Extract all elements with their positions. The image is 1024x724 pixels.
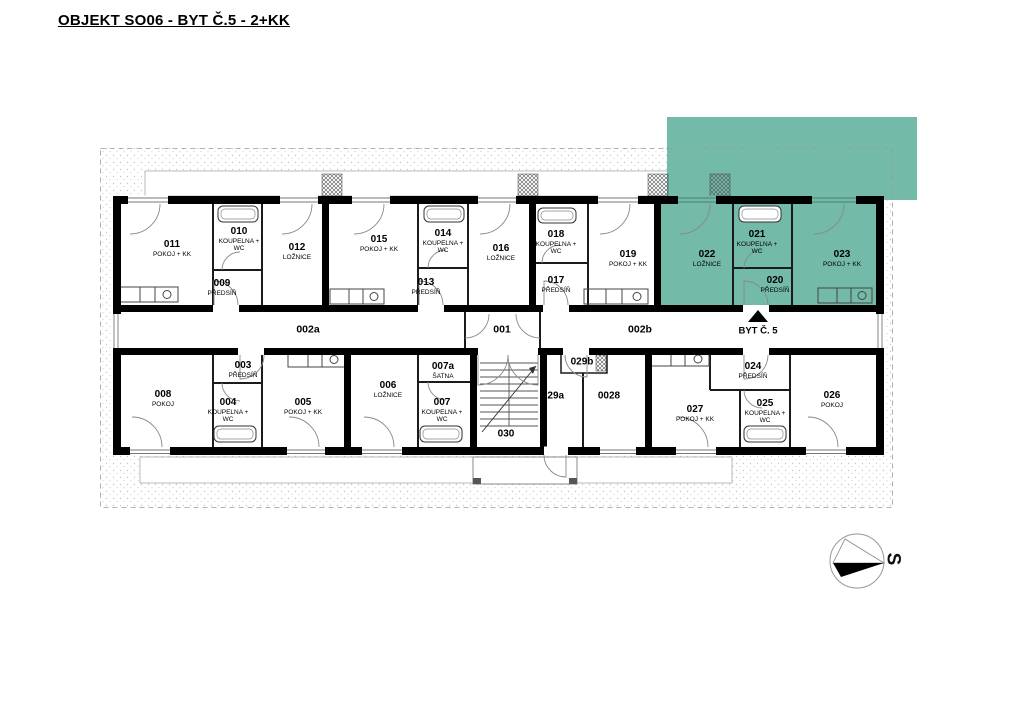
room-label-020: 020PŘEDSÍŇ — [761, 276, 790, 294]
room-label-005: 005POKOJ + KK — [284, 398, 322, 416]
room-label-013: 013PŘEDSÍŇ — [412, 278, 441, 296]
room-label-0028: 0028 — [598, 392, 620, 403]
room-label-021: 021KOUPELNA + WC — [733, 230, 781, 256]
room-label-022: 022LOŽNICE — [693, 250, 721, 268]
floorplan-drawing — [0, 0, 1024, 724]
apartment-pointer-label: BYT Č. 5 — [738, 326, 777, 337]
room-label-003: 003PŘEDSÍŇ — [229, 361, 258, 379]
compass-rose — [830, 534, 884, 588]
room-label-006: 006LOŽNICE — [374, 381, 402, 399]
room-label-030: 030 — [498, 430, 515, 441]
corridor-label-002b: 002b — [628, 324, 652, 335]
room-label-014: 014KOUPELNA + WC — [419, 229, 467, 255]
room-label-018: 018KOUPELNA + WC — [532, 230, 580, 256]
room-label-009: 009PŘEDSÍŇ — [208, 279, 237, 297]
room-label-019: 019POKOJ + KK — [609, 250, 647, 268]
room-label-024: 024PŘEDSÍŇ — [739, 362, 768, 380]
apartment-highlight — [667, 117, 917, 200]
room-label-023: 023POKOJ + KK — [823, 250, 861, 268]
room-label-027: 027POKOJ + KK — [676, 405, 714, 423]
room-label-008: 008POKOJ — [152, 390, 174, 408]
room-label-012: 012LOŽNICE — [283, 243, 311, 261]
room-label-010: 010KOUPELNA + WC — [215, 227, 263, 253]
room-label-011: 011POKOJ + KK — [153, 240, 191, 258]
corridor-label-001: 001 — [493, 324, 511, 335]
room-label-007: 007KOUPELNA + WC — [418, 398, 466, 424]
compass-north-label: S — [881, 553, 903, 566]
floorplan-page: OBJEKT SO06 - BYT Č.5 - 2+KK — [0, 0, 1024, 724]
corridor-label-002a: 002a — [296, 324, 319, 335]
room-label-017: 017PŘEDSÍŇ — [542, 276, 571, 294]
room-label-029b: 029b — [571, 358, 594, 369]
room-label-015: 015POKOJ + KK — [360, 235, 398, 253]
room-label-004: 004KOUPELNA + WC — [204, 398, 252, 424]
room-label-016: 016LOŽNICE — [487, 244, 515, 262]
room-label-007a: 007aŠATNA — [432, 362, 454, 380]
room-label-029a: 029a — [542, 392, 564, 403]
room-label-026: 026POKOJ — [821, 391, 843, 409]
room-label-025: 025KOUPELNA + WC — [741, 399, 789, 425]
